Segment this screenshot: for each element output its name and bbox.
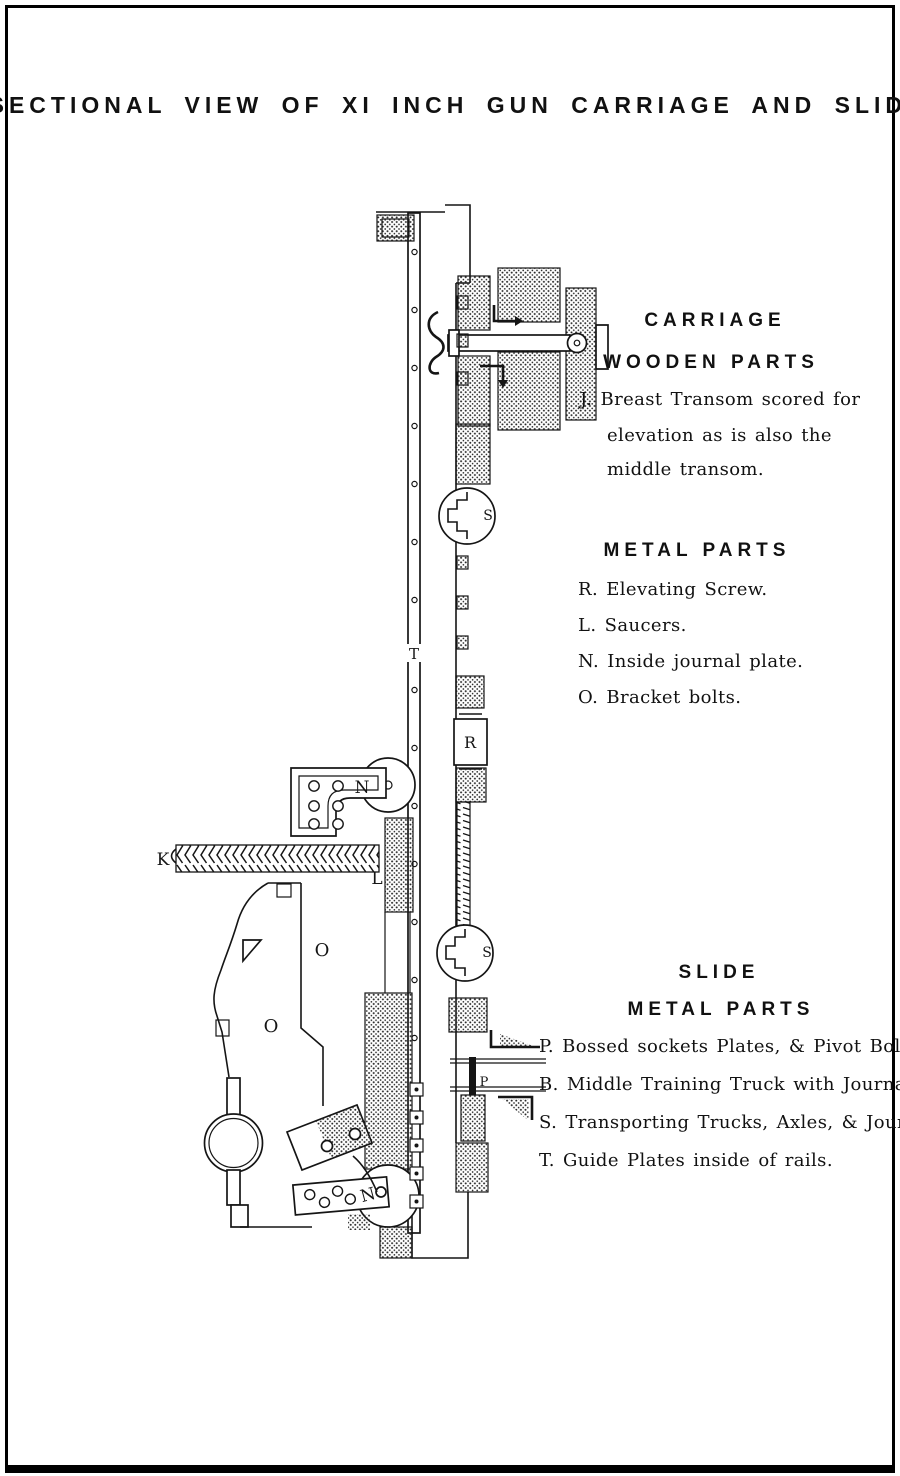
slide-heading: SLIDE xyxy=(679,962,760,984)
compressor-screw: K xyxy=(157,845,379,872)
legend-item-b: B. Middle Training Truck with Journals. xyxy=(539,1074,900,1095)
legend-item-n: N. Inside journal plate. xyxy=(578,651,803,672)
transporting-truck-lower: S xyxy=(437,925,493,981)
legend-item-l: L. Saucers. xyxy=(578,615,687,636)
legend-item-j-line1: J. Breast Transom scored for xyxy=(580,389,860,410)
screw-thread-column xyxy=(457,802,470,928)
metal-parts-heading: METAL PARTS xyxy=(604,540,791,562)
saucer-column: L xyxy=(365,818,413,1169)
elevating-screw-shaft xyxy=(448,334,587,353)
plate-page: SECTIONAL VIEW OF XI INCH GUN CARRIAGE A… xyxy=(0,0,900,1476)
label-l: L xyxy=(371,869,382,889)
legend-item-r: R. Elevating Screw. xyxy=(578,579,768,600)
carriage-cheek: O O xyxy=(214,883,329,1106)
sectional-diagram: T xyxy=(0,0,900,1476)
label-s-lower: S xyxy=(482,945,492,961)
legend-item-p: P. Bossed sockets Plates, & Pivot Bolts. xyxy=(539,1036,900,1057)
legend-item-j-line2: elevation as is also the xyxy=(607,425,832,446)
label-o-lower: O xyxy=(264,1016,279,1037)
label-r: R xyxy=(464,733,477,752)
transporting-truck-upper: S xyxy=(439,488,495,544)
legend-item-o: O. Bracket bolts. xyxy=(578,687,741,708)
label-o-upper: O xyxy=(315,940,330,961)
label-k: K xyxy=(157,850,170,870)
label-s-upper: S xyxy=(483,508,493,524)
wooden-parts-heading: WOODEN PARTS xyxy=(603,352,819,374)
legend-item-t: T. Guide Plates inside of rails. xyxy=(539,1150,833,1171)
bracket-bolt-plate xyxy=(287,1105,372,1170)
slide-metal-parts-heading: METAL PARTS xyxy=(628,999,815,1021)
legend-item-s: S. Transporting Trucks, Axles, & Journal… xyxy=(539,1112,900,1133)
label-p: P xyxy=(480,1075,489,1090)
screw-handle xyxy=(429,312,459,373)
label-n-upper: N xyxy=(355,778,370,798)
elevating-screw-nut: R xyxy=(454,714,487,769)
legend-item-j-line3: middle transom. xyxy=(607,459,764,480)
carriage-heading: CARRIAGE xyxy=(644,310,785,332)
label-t: T xyxy=(409,645,419,663)
